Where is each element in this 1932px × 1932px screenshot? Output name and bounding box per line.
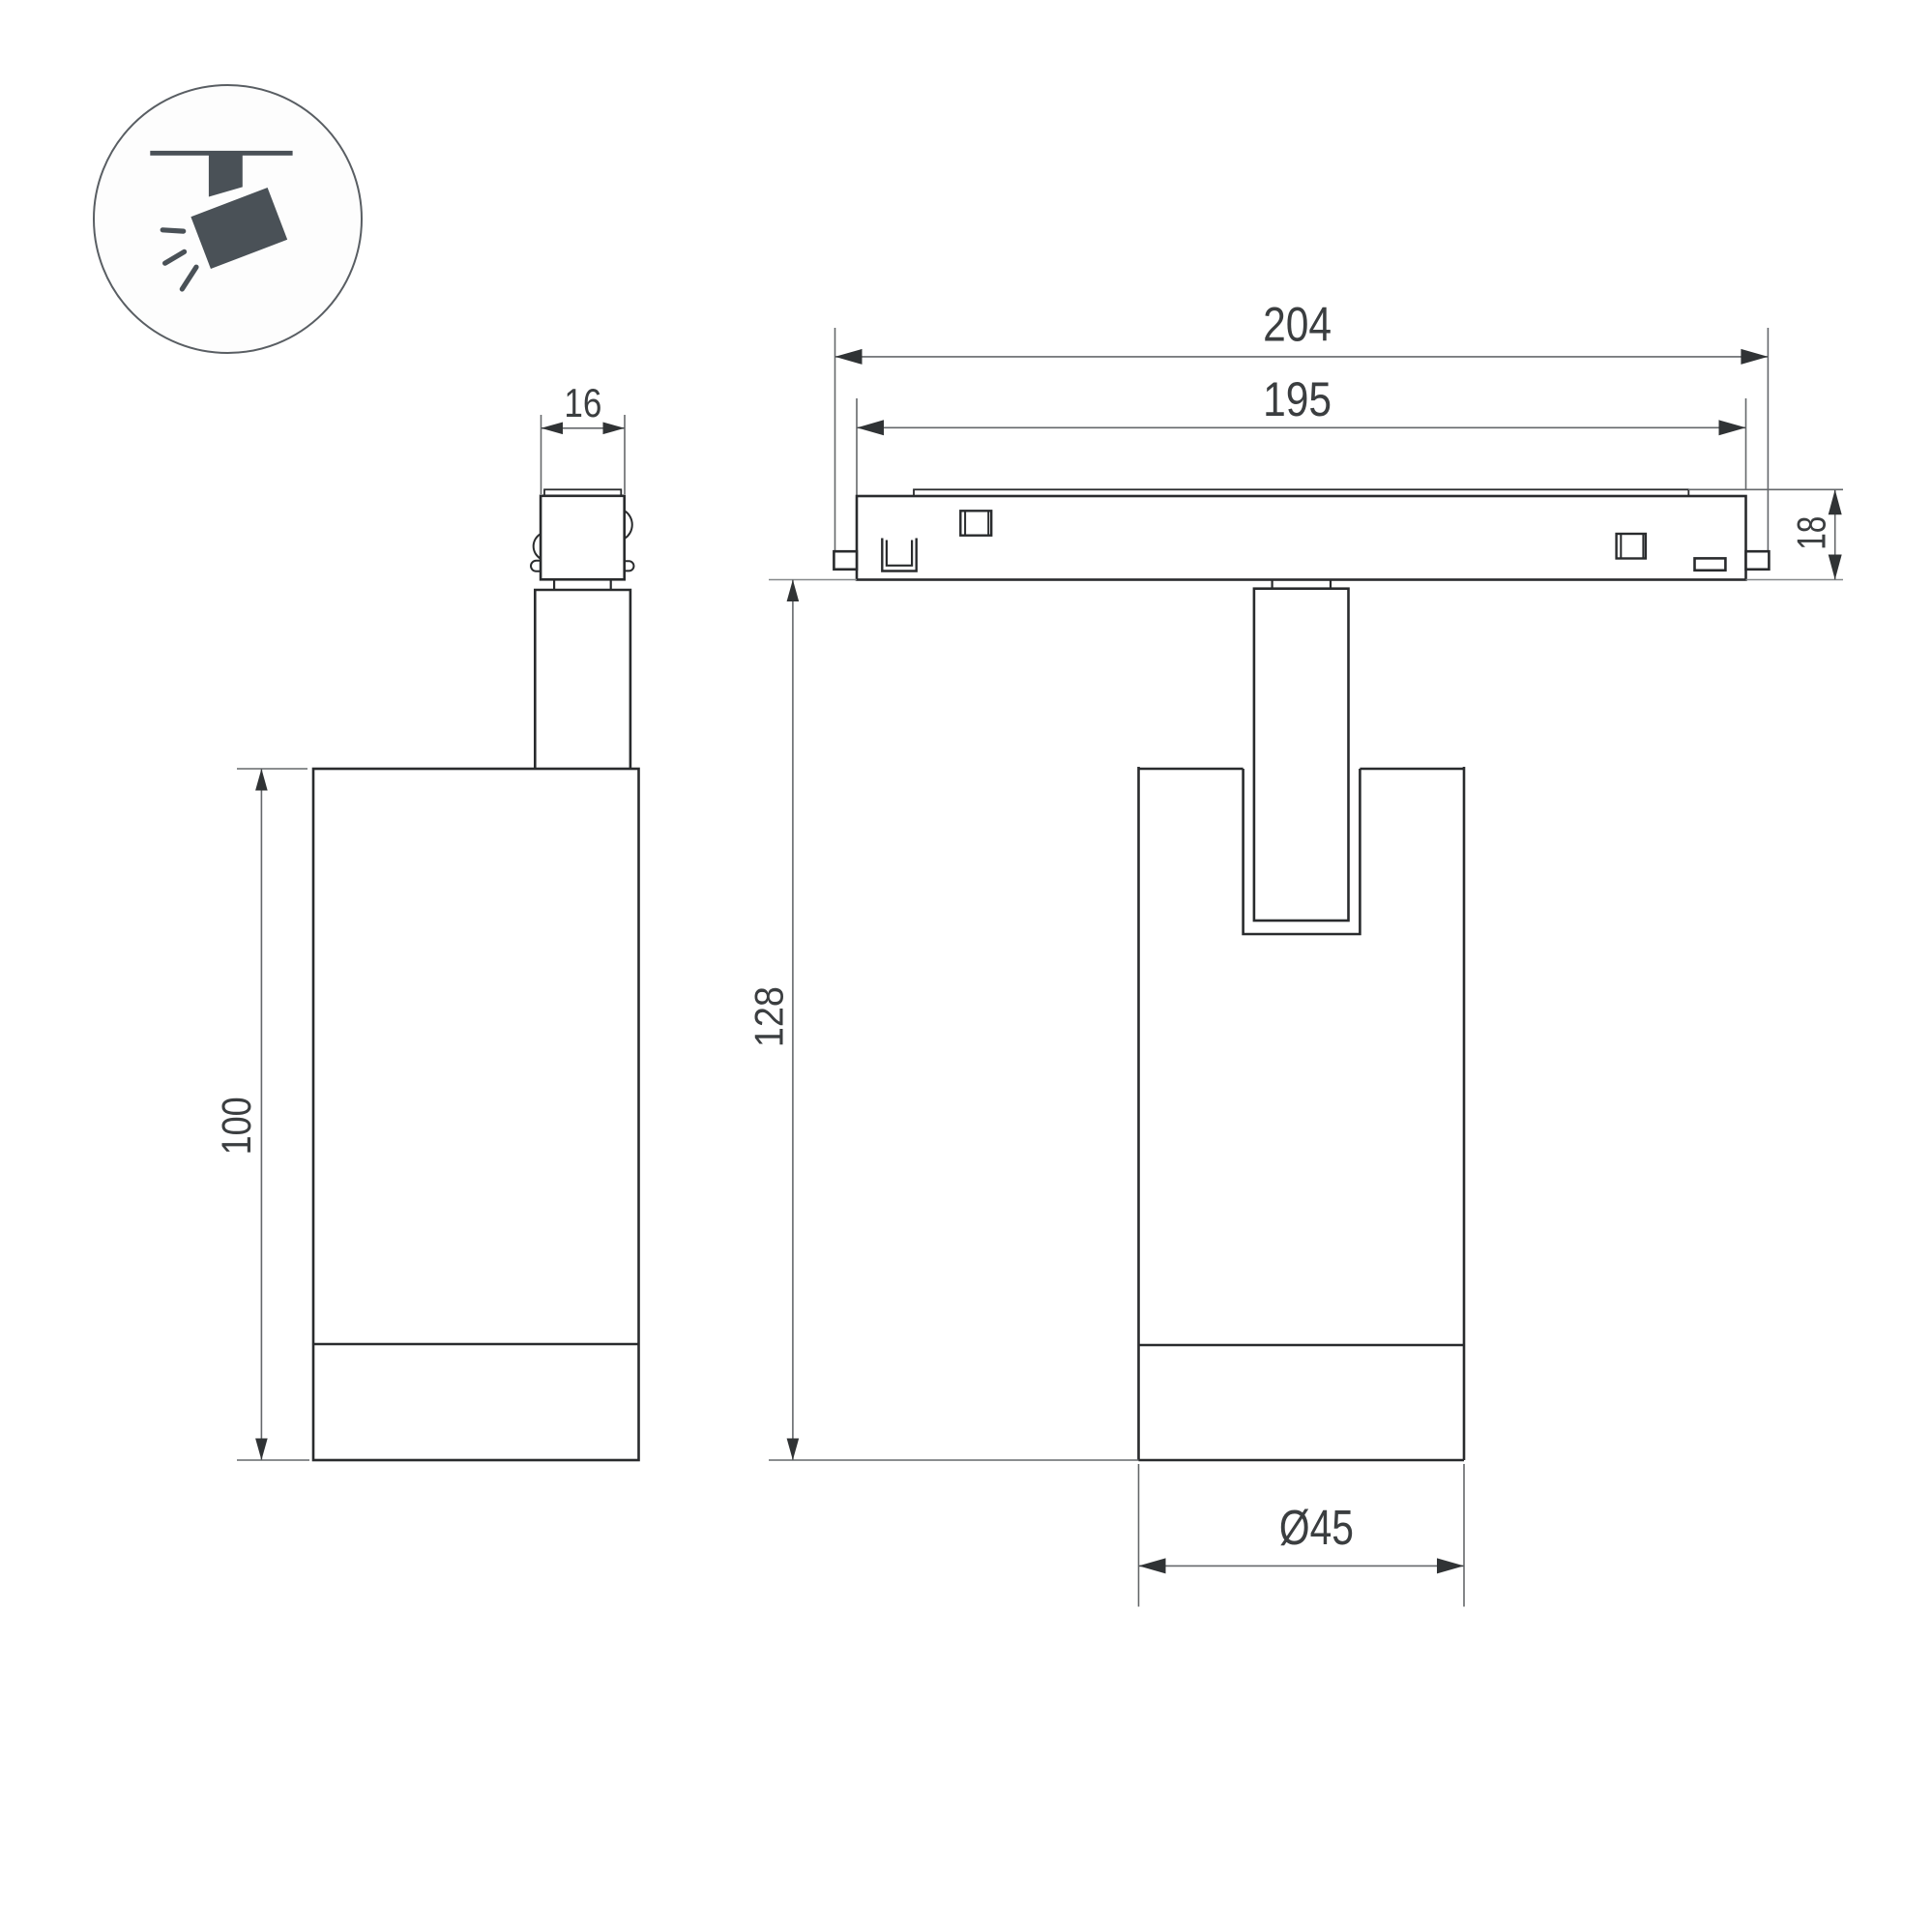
svg-text:16: 16 — [564, 380, 601, 425]
svg-text:Ø45: Ø45 — [1279, 1500, 1354, 1555]
svg-text:195: 195 — [1263, 372, 1332, 426]
svg-text:100: 100 — [214, 1097, 260, 1155]
svg-text:18: 18 — [1788, 516, 1833, 550]
svg-text:128: 128 — [746, 986, 791, 1047]
svg-text:204: 204 — [1263, 298, 1332, 352]
